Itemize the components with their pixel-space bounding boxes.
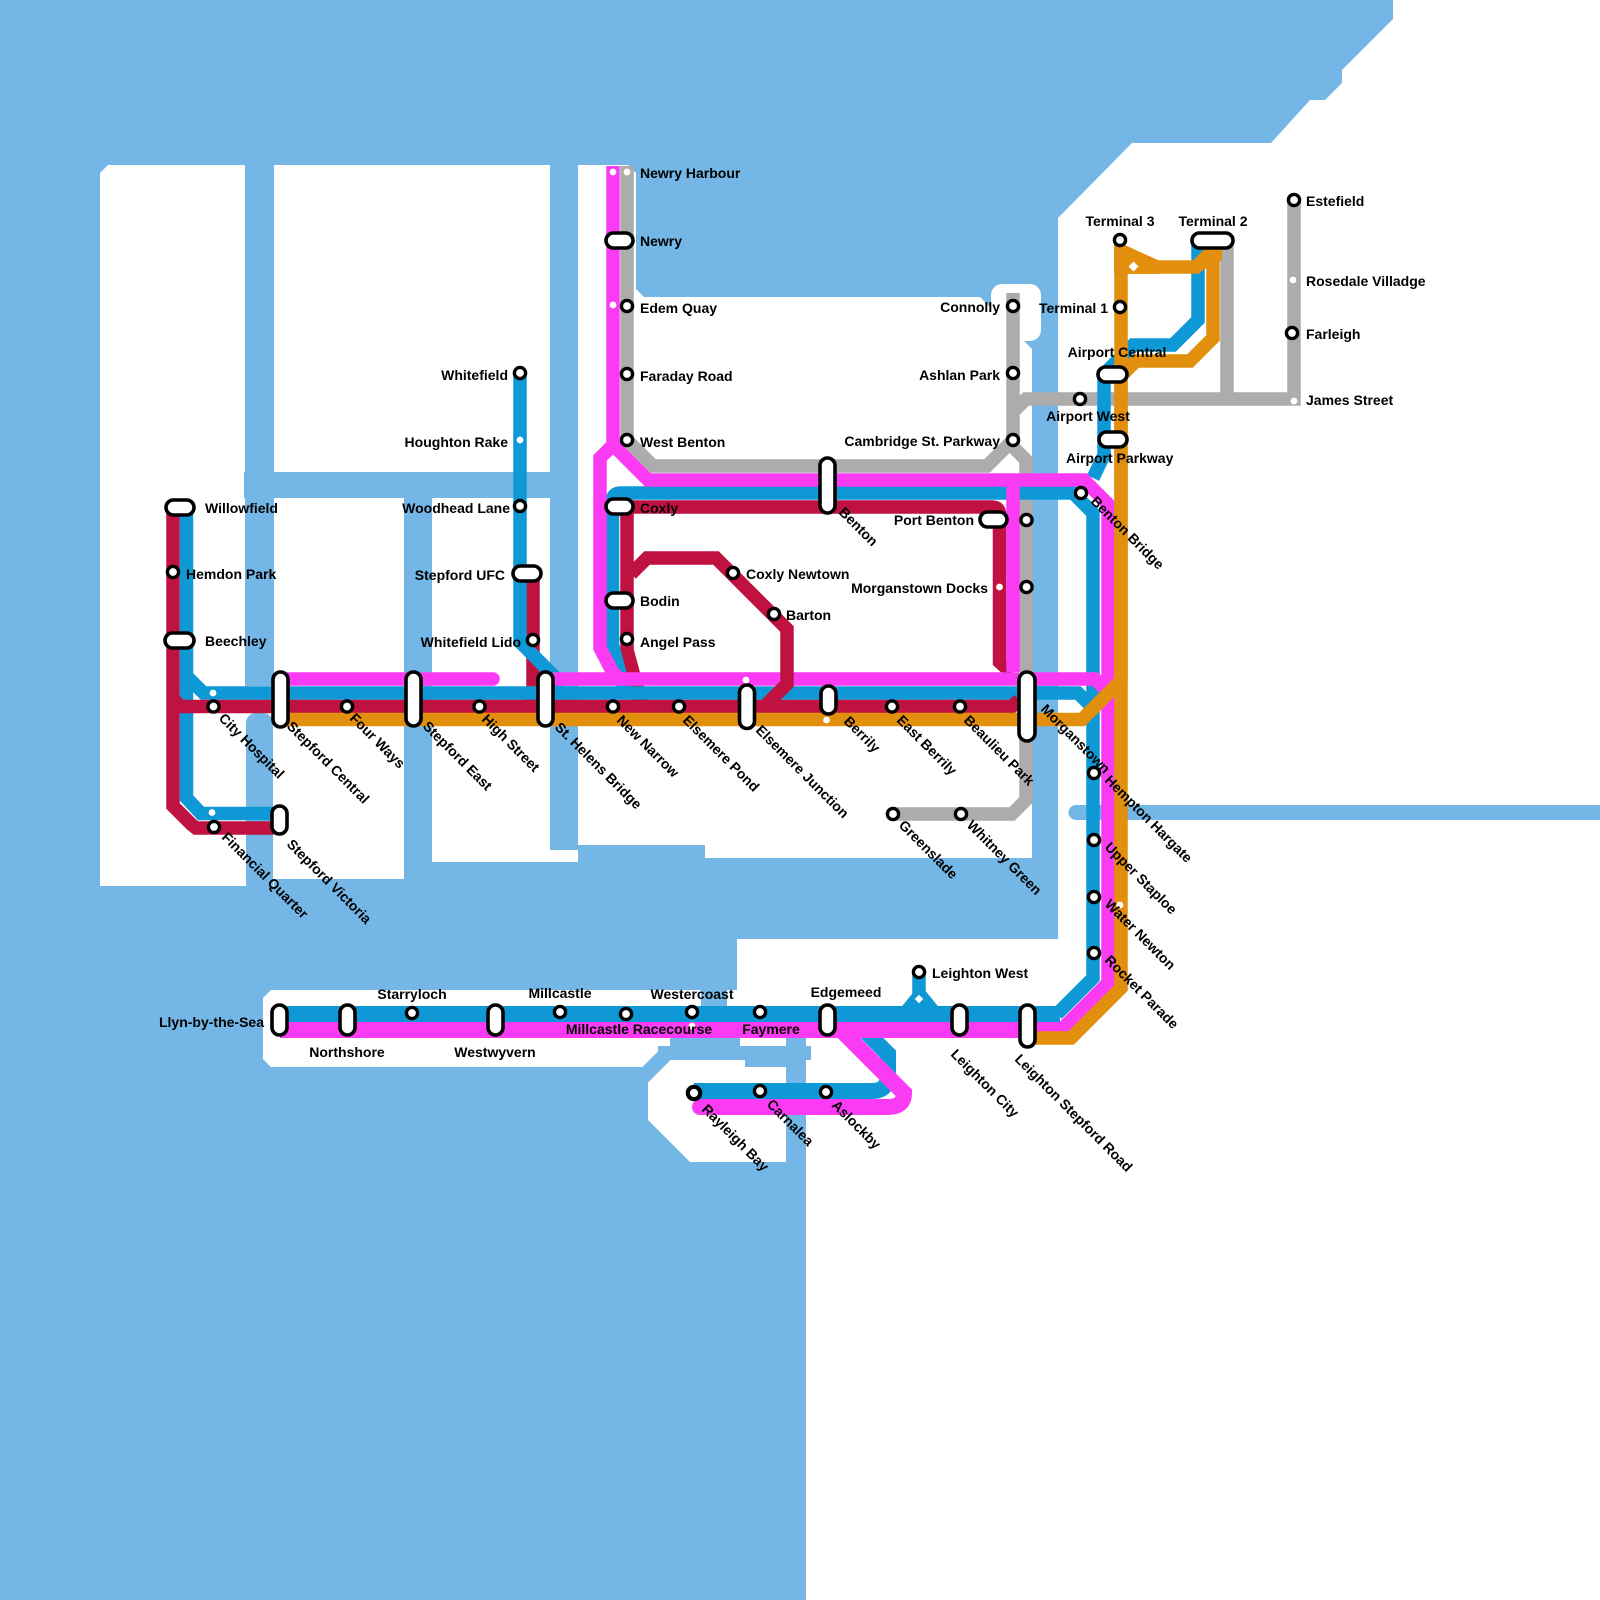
svg-text:Faraday Road: Faraday Road xyxy=(640,368,733,384)
svg-text:Terminal 3: Terminal 3 xyxy=(1086,213,1155,229)
svg-text:Airport Parkway: Airport Parkway xyxy=(1066,450,1174,466)
svg-text:Faymere: Faymere xyxy=(742,1021,800,1037)
svg-text:Bodin: Bodin xyxy=(640,593,680,609)
svg-text:Cambridge St. Parkway: Cambridge St. Parkway xyxy=(844,433,1000,449)
svg-text:Edem Quay: Edem Quay xyxy=(640,300,717,316)
svg-text:Houghton Rake: Houghton Rake xyxy=(405,434,509,450)
svg-text:Coxly Newtown: Coxly Newtown xyxy=(746,566,849,582)
svg-text:Beechley: Beechley xyxy=(205,633,267,649)
svg-text:Edgemeed: Edgemeed xyxy=(811,984,882,1000)
svg-text:Barton: Barton xyxy=(786,607,831,623)
svg-text:Leighton West: Leighton West xyxy=(932,965,1029,981)
svg-text:Hemdon Park: Hemdon Park xyxy=(186,566,276,582)
svg-text:Airport Central: Airport Central xyxy=(1068,344,1167,360)
svg-text:Rosedale Villadge: Rosedale Villadge xyxy=(1306,273,1426,289)
svg-text:Northshore: Northshore xyxy=(309,1044,385,1060)
svg-text:Estefield: Estefield xyxy=(1306,193,1364,209)
svg-text:Woodhead Lane: Woodhead Lane xyxy=(402,500,510,516)
svg-text:Millcastle Racecourse: Millcastle Racecourse xyxy=(566,1021,713,1037)
svg-text:Whitefield: Whitefield xyxy=(441,367,508,383)
svg-text:West Benton: West Benton xyxy=(640,434,725,450)
svg-text:Port Benton: Port Benton xyxy=(894,512,974,528)
svg-text:Terminal 2: Terminal 2 xyxy=(1179,213,1248,229)
svg-text:Willowfield: Willowfield xyxy=(205,500,278,516)
svg-text:Newry: Newry xyxy=(640,233,682,249)
svg-text:Ashlan Park: Ashlan Park xyxy=(919,367,1000,383)
svg-text:Farleigh: Farleigh xyxy=(1306,326,1360,342)
svg-text:Coxly: Coxly xyxy=(640,500,678,516)
svg-text:Angel Pass: Angel Pass xyxy=(640,634,716,650)
svg-text:James Street: James Street xyxy=(1306,392,1394,408)
svg-text:Connolly: Connolly xyxy=(940,299,1000,315)
svg-text:Westercoast: Westercoast xyxy=(650,986,733,1002)
svg-text:Westwyvern: Westwyvern xyxy=(454,1044,535,1060)
svg-text:Millcastle: Millcastle xyxy=(528,985,591,1001)
svg-text:Airport West: Airport West xyxy=(1046,408,1130,424)
svg-text:Terminal 1: Terminal 1 xyxy=(1039,300,1108,316)
svg-text:Llyn-by-the-Sea: Llyn-by-the-Sea xyxy=(159,1014,264,1030)
svg-text:Whitefield Lido: Whitefield Lido xyxy=(421,634,521,650)
svg-text:Morganstown Docks: Morganstown Docks xyxy=(851,580,988,596)
svg-text:Starryloch: Starryloch xyxy=(377,986,446,1002)
svg-text:Newry Harbour: Newry Harbour xyxy=(640,165,741,181)
svg-text:Stepford UFC: Stepford UFC xyxy=(415,567,505,583)
